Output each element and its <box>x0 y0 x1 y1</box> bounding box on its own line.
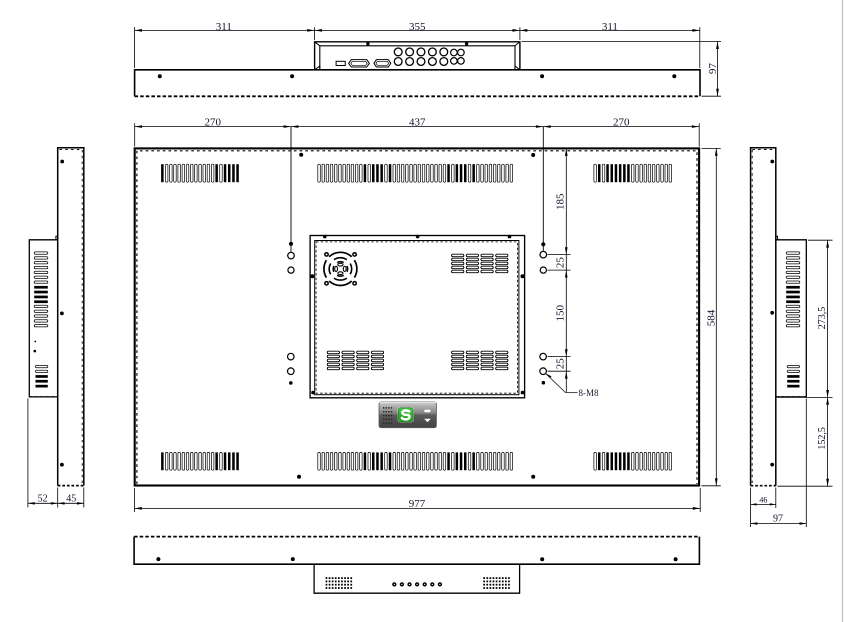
svg-text:150: 150 <box>554 304 566 321</box>
svg-text:311: 311 <box>602 21 618 33</box>
svg-text:355: 355 <box>409 21 426 33</box>
svg-text:270: 270 <box>613 117 630 129</box>
svg-text:46: 46 <box>759 496 767 505</box>
svg-text:977: 977 <box>409 498 426 510</box>
svg-text:52: 52 <box>38 494 48 505</box>
svg-text:25: 25 <box>554 358 566 370</box>
svg-text:8-M8: 8-M8 <box>579 388 599 398</box>
svg-text:185: 185 <box>554 193 566 210</box>
svg-text:97: 97 <box>707 63 719 75</box>
svg-text:270: 270 <box>204 117 221 129</box>
svg-text:584: 584 <box>706 309 718 326</box>
svg-text:273,5: 273,5 <box>817 307 828 330</box>
svg-text:25: 25 <box>554 257 566 269</box>
svg-text:152,5: 152,5 <box>817 427 828 450</box>
svg-text:437: 437 <box>409 117 426 129</box>
svg-text:311: 311 <box>216 21 232 33</box>
svg-text:97: 97 <box>773 514 783 525</box>
svg-text:45: 45 <box>66 494 76 505</box>
